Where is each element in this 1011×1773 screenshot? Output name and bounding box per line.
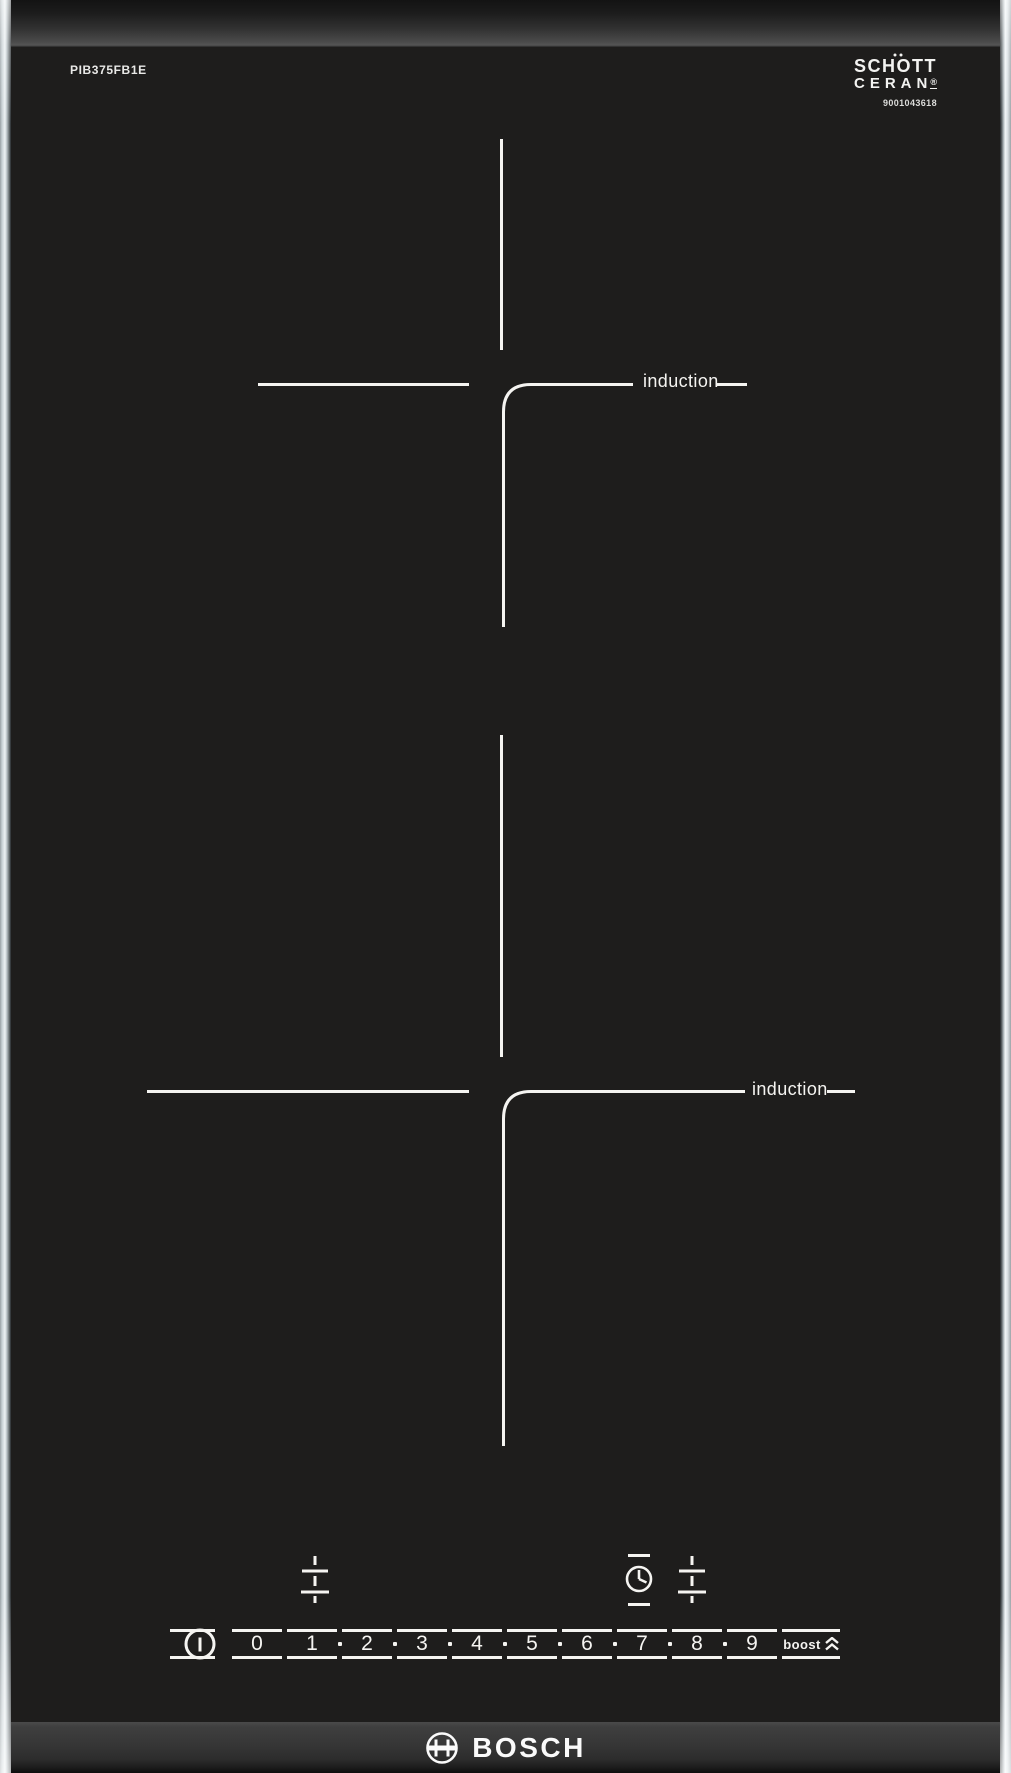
bosch-emblem-icon: [425, 1731, 459, 1765]
level-adjust-icon[interactable]: [300, 1555, 330, 1603]
level-4[interactable]: 4: [452, 1629, 502, 1659]
level-6[interactable]: 6: [562, 1629, 612, 1659]
level-1[interactable]: 1: [287, 1629, 337, 1659]
level-9[interactable]: 9: [727, 1629, 777, 1659]
zone-rear-corner: [504, 385, 634, 628]
zone-front-corner: [504, 1092, 746, 1447]
level-adjust-icon[interactable]: [677, 1555, 707, 1603]
level-3[interactable]: 3: [397, 1629, 447, 1659]
schott-logo-dot: [894, 54, 897, 57]
bosch-wordmark: BOSCH: [472, 1734, 586, 1762]
left-metal-trim: [0, 0, 11, 1773]
cooking-zone-markings: [0, 0, 1011, 1773]
level-separator-dot: [723, 1642, 727, 1646]
level-separator-dot: [613, 1642, 617, 1646]
level-separator-dot: [448, 1642, 452, 1646]
level-0[interactable]: 0: [232, 1629, 282, 1659]
zone-front-induction-label: induction: [752, 1079, 828, 1100]
zone-rear-induction-label: induction: [643, 371, 719, 392]
level-separator-dot: [668, 1642, 672, 1646]
level-7[interactable]: 7: [617, 1629, 667, 1659]
level-5[interactable]: 5: [507, 1629, 557, 1659]
level-separator-dot: [393, 1642, 397, 1646]
level-separator-dot: [338, 1642, 342, 1646]
double-chevron-up-icon: [825, 1637, 839, 1651]
power-icon: [185, 1629, 216, 1660]
right-metal-trim: [1000, 0, 1011, 1773]
boost-button[interactable]: boost: [782, 1629, 840, 1659]
timer-clock-icon[interactable]: [625, 1553, 653, 1607]
zone-front-marking: [147, 735, 855, 1446]
induction-cooktop: PIB375FB1E SCHOTT CERAN® 9001043618 indu…: [0, 0, 1011, 1773]
level-separator-dot: [558, 1642, 562, 1646]
touch-control-strip: 0 1 2 3 4 5 6 7 8 9 boost: [170, 1629, 840, 1659]
level-2[interactable]: 2: [342, 1629, 392, 1659]
bosch-logo: BOSCH: [0, 1729, 1011, 1767]
power-button[interactable]: [170, 1629, 215, 1659]
level-separator-dot: [503, 1642, 507, 1646]
level-8[interactable]: 8: [672, 1629, 722, 1659]
schott-logo-dot: [900, 54, 903, 57]
